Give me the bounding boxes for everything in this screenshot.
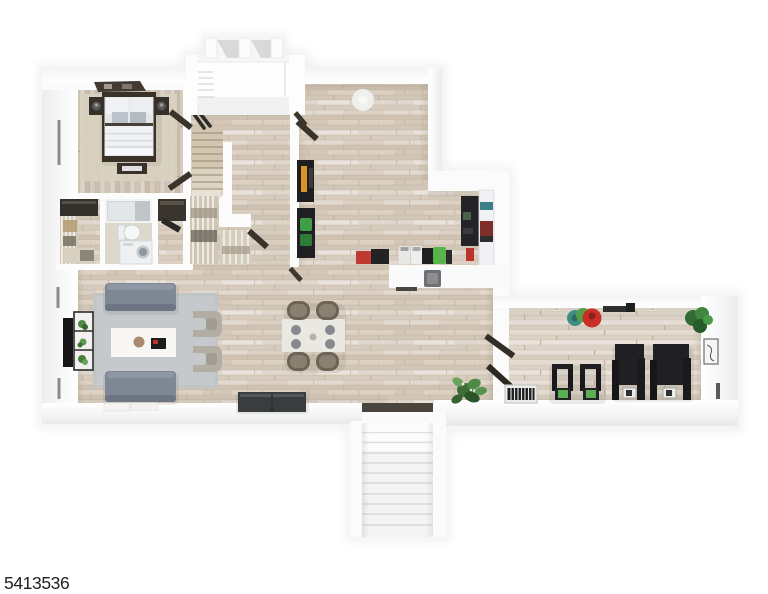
svg-text:5413536: 5413536 <box>4 573 69 593</box>
